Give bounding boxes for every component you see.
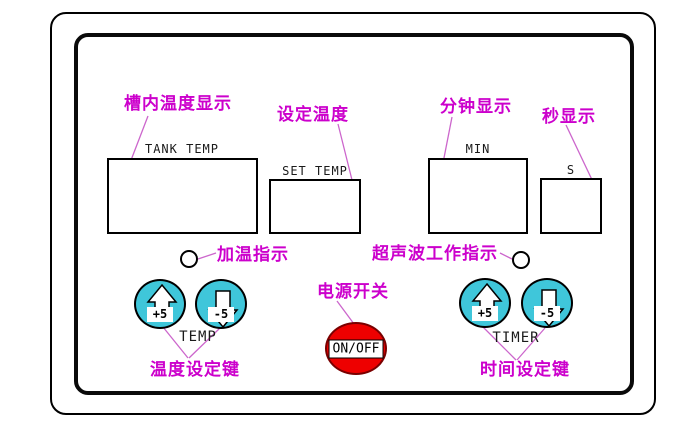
- timer-group-label: TIMER: [492, 330, 539, 346]
- up-arrow-icon: [461, 280, 513, 330]
- temp-down-value: -5: [208, 307, 234, 322]
- annotation-set-temp: 设定温度: [277, 107, 349, 124]
- caption-sec: S: [567, 163, 575, 177]
- ultrasonic-indicator-lamp: [512, 251, 530, 269]
- down-arrow-icon: [523, 280, 575, 330]
- temp-group-label: TEMP: [179, 329, 217, 345]
- annotation-heating: 加温指示: [217, 247, 289, 264]
- temp-down-button[interactable]: -5: [195, 279, 247, 329]
- annotation-sec: 秒显示: [542, 109, 596, 126]
- display-set-temp: [269, 179, 361, 234]
- caption-set-temp: SET TEMP: [282, 164, 348, 178]
- timer-down-value: -5: [534, 306, 560, 321]
- temp-up-value: +5: [147, 307, 173, 322]
- temp-up-button[interactable]: +5: [134, 279, 186, 329]
- display-sec: [540, 178, 602, 234]
- timer-down-button[interactable]: -5: [521, 278, 573, 328]
- power-button[interactable]: ON/OFF: [325, 322, 387, 375]
- annotation-temp-keys: 温度设定键: [150, 362, 240, 379]
- heating-indicator-lamp: [180, 250, 198, 268]
- timer-up-button[interactable]: +5: [459, 278, 511, 328]
- timer-up-value: +5: [472, 306, 498, 321]
- annotation-timer-keys: 时间设定键: [480, 362, 570, 379]
- caption-min: MIN: [466, 142, 491, 156]
- display-min: [428, 158, 528, 234]
- annotation-min: 分钟显示: [440, 99, 512, 116]
- annotation-ultrasonic: 超声波工作指示: [372, 246, 498, 263]
- down-arrow-icon: [197, 281, 249, 331]
- annotation-power: 电源开关: [317, 284, 389, 301]
- up-arrow-icon: [136, 281, 188, 331]
- display-tank-temp: [107, 158, 258, 234]
- power-button-label: ON/OFF: [329, 339, 384, 358]
- caption-tank-temp: TANK TEMP: [145, 142, 219, 156]
- annotation-tank-temp: 槽内温度显示: [124, 96, 232, 113]
- control-panel-diagram: 槽内温度显示 设定温度 分钟显示 秒显示 加温指示 超声波工作指示 电源开关 温…: [0, 0, 700, 428]
